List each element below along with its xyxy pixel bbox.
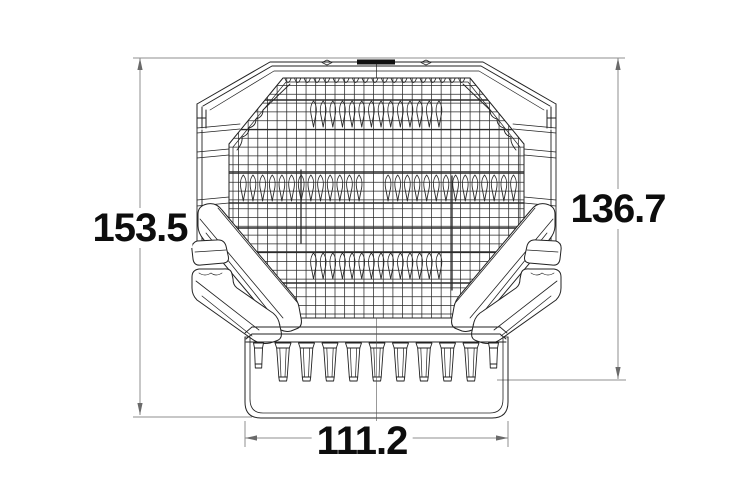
left-chamfer-scallop <box>237 84 290 150</box>
top-cap <box>197 60 556 111</box>
dimension-label-overall-height: 153.5 <box>87 208 192 248</box>
dimension-label-body-height: 136.7 <box>565 189 670 229</box>
heatsink-fins <box>254 343 499 381</box>
drawing-canvas: 153.5 136.7 111.2 <box>0 0 750 500</box>
beacon-body <box>192 60 561 433</box>
side-post-and-bracket-right <box>452 104 562 344</box>
side-post-and-bracket-left <box>192 104 302 344</box>
mount-tab <box>192 240 229 265</box>
dimension-label-base-width: 111.2 <box>312 421 413 461</box>
cap-top-slot <box>357 60 395 65</box>
